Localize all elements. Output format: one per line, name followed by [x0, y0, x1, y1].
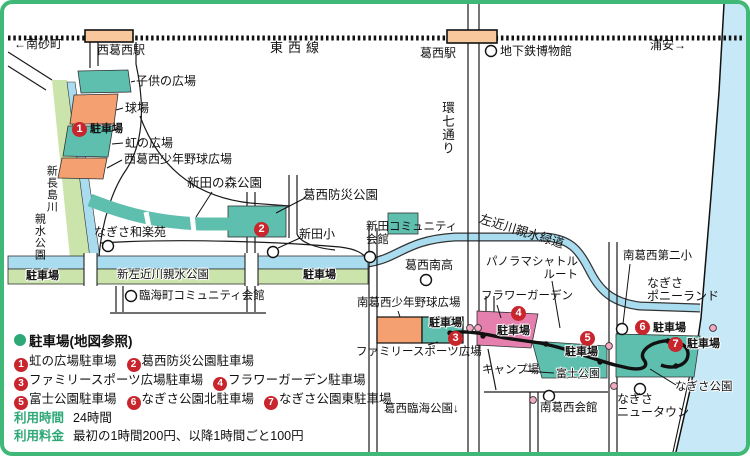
legend-marker-7: 7	[264, 396, 278, 410]
parking-legend: 駐車場(地図参照) 1虹の広場駐車場2葛西防災公園駐車場3ファミリースポーツ広場…	[14, 330, 402, 445]
minamikasai-yakyu-label: 南葛西少年野球広場	[357, 297, 461, 310]
kasai-parking-map: ←南砂町 西葛西駅 東西線 葛西駅 地下鉄博物館 浦安→ 子供の広場 球場 虹の…	[0, 0, 750, 456]
parking-label-west: 駐車場	[26, 270, 59, 282]
minamikasai-hall-label: 南葛西会館	[540, 402, 598, 415]
legend-marker-3: 3	[14, 377, 28, 391]
parking7-label: 駐車場	[687, 338, 720, 350]
nitta-mori-label: 新田の森公園	[187, 176, 262, 190]
tozai-line-label: 東西線	[270, 41, 324, 56]
legend-row-2: 3ファミリースポーツ広場駐車場4フラワーガーデン駐車場	[14, 372, 402, 391]
marker-5: 5	[580, 331, 595, 346]
camp-label: キャンプ場	[482, 364, 539, 377]
legend-marker-5: 5	[14, 396, 28, 410]
bridge-gap	[84, 253, 97, 286]
legend-item-label: なぎさ公園東駐車場	[279, 392, 392, 406]
legend-row-1: 1虹の広場駐車場2葛西防災公園駐車場	[14, 353, 402, 372]
minamikasai-hall-marker	[544, 391, 555, 402]
parking1-label: 駐車場	[90, 123, 123, 135]
parking3-label: 駐車場	[429, 317, 462, 329]
marker-6: 6	[635, 320, 650, 335]
nitta-sho-marker	[268, 247, 279, 258]
kyujo-label: 球場	[125, 102, 149, 115]
green-bullet-icon	[14, 334, 26, 346]
panorama-route-label: パノラマシャトル ルート	[486, 256, 578, 282]
nagisa-park-label: なぎさ公園	[675, 381, 733, 394]
metro-museum-marker	[486, 46, 497, 57]
kyujo-area	[70, 94, 118, 124]
legend-item-label: 虹の広場駐車場	[29, 354, 117, 368]
legend-marker-2: 2	[127, 358, 141, 372]
kasai-minami-high-label: 葛西南高	[405, 259, 453, 272]
terminus-urayasu: 浦安→	[650, 39, 686, 52]
legend-marker-1: 1	[14, 358, 28, 372]
pony-land-label: なぎさ ポニーランド	[647, 277, 719, 304]
bridge-gap	[245, 253, 258, 286]
parking4-label: 駐車場	[497, 325, 530, 337]
legend-marker-6: 6	[127, 396, 141, 410]
rinkai-community-marker	[126, 291, 137, 302]
legend-hours-line: 利用時間24時間	[14, 410, 402, 428]
nitta-sho-label: 新田小	[299, 228, 335, 241]
parking5-label: 駐車場	[565, 346, 598, 358]
terminus-minamisuna: ←南砂町	[14, 38, 62, 51]
kodomo-hiroba-area	[78, 70, 131, 93]
marker-7: 7	[668, 337, 683, 352]
legend-title-row: 駐車場(地図参照)	[14, 330, 402, 350]
nishikasai-yakyu-label: 西葛西少年野球広場	[124, 153, 232, 166]
minamikasai2-sho-label: 南葛西第二小	[623, 250, 692, 263]
minamikasai2-sho-marker	[617, 324, 628, 335]
shinsakon-label: 新左近川親水公園	[117, 269, 209, 282]
rinkai-community-label: 臨海町コミュニティ会館	[139, 290, 265, 303]
shinsakon-water	[8, 256, 368, 269]
parking6-label: 駐車場	[653, 322, 686, 334]
nagisa-waraku-marker	[103, 241, 114, 252]
niji-hiroba-label: 虹の広場	[125, 137, 173, 150]
kasai-minami-high-marker	[421, 275, 432, 286]
hours-label: 利用時間	[14, 411, 64, 425]
nishikasai-yakyu-area	[58, 158, 107, 179]
shinnagashima-label-a: 新長島川	[45, 165, 57, 213]
legend-item-label: 富士公園駐車場	[29, 392, 117, 406]
station-kasai-label: 葛西駅	[420, 47, 456, 60]
nitta-community-marker	[365, 252, 376, 263]
kasai-station-box	[447, 30, 497, 43]
metro-museum-label: 地下鉄博物館	[500, 45, 572, 58]
shinnagashima-label-b: 親水公園	[33, 213, 45, 261]
legend-fee-line: 利用料金最初の1時間200円、以降1時間ごと100円	[14, 428, 402, 446]
nitta-mori-band	[90, 200, 230, 224]
flower-garden-label: フラワーガーデン	[481, 290, 573, 303]
nitta-community-label: 新田コミュニティ 会館	[366, 221, 457, 247]
fuji-park-label: 富士公園	[556, 368, 600, 380]
kodomo-hiroba-label: 子供の広場	[136, 75, 196, 88]
parking-label-mid: 駐車場	[303, 269, 336, 281]
kasai-bosai-label: 葛西防災公園	[303, 188, 378, 202]
legend-item-label: なぎさ公園北駐車場	[142, 392, 255, 406]
marker-4: 4	[511, 306, 526, 321]
hours-value: 24時間	[73, 411, 112, 425]
legend-row-3: 5富士公園駐車場6なぎさ公園北駐車場7なぎさ公園東駐車場	[14, 391, 402, 410]
fee-label: 利用料金	[14, 429, 64, 443]
marker-2: 2	[254, 222, 269, 237]
legend-marker-4: 4	[213, 377, 227, 391]
legend-item-label: ファミリースポーツ広場駐車場	[29, 373, 203, 387]
newtown-label: なぎさ ニュータウン	[617, 393, 689, 420]
legend-title: 駐車場(地図参照)	[29, 330, 133, 350]
legend-rows: 1虹の広場駐車場2葛西防災公園駐車場3ファミリースポーツ広場駐車場4フラワーガー…	[14, 353, 402, 410]
station-nishikasai-label: 西葛西駅	[97, 44, 145, 57]
marker-3: 3	[448, 331, 463, 346]
fee-value: 最初の1時間200円、以降1時間ごと100円	[73, 429, 304, 443]
nishikasai-station-box	[85, 30, 133, 42]
legend-item-label: 葛西防災公園駐車場	[142, 354, 255, 368]
kannana-label: 環七通り	[440, 101, 454, 155]
nagisa-waraku-label: なぎさ和楽苑	[94, 226, 166, 239]
legend-item-label: フラワーガーデン駐車場	[228, 373, 366, 387]
marker-1: 1	[72, 122, 87, 137]
